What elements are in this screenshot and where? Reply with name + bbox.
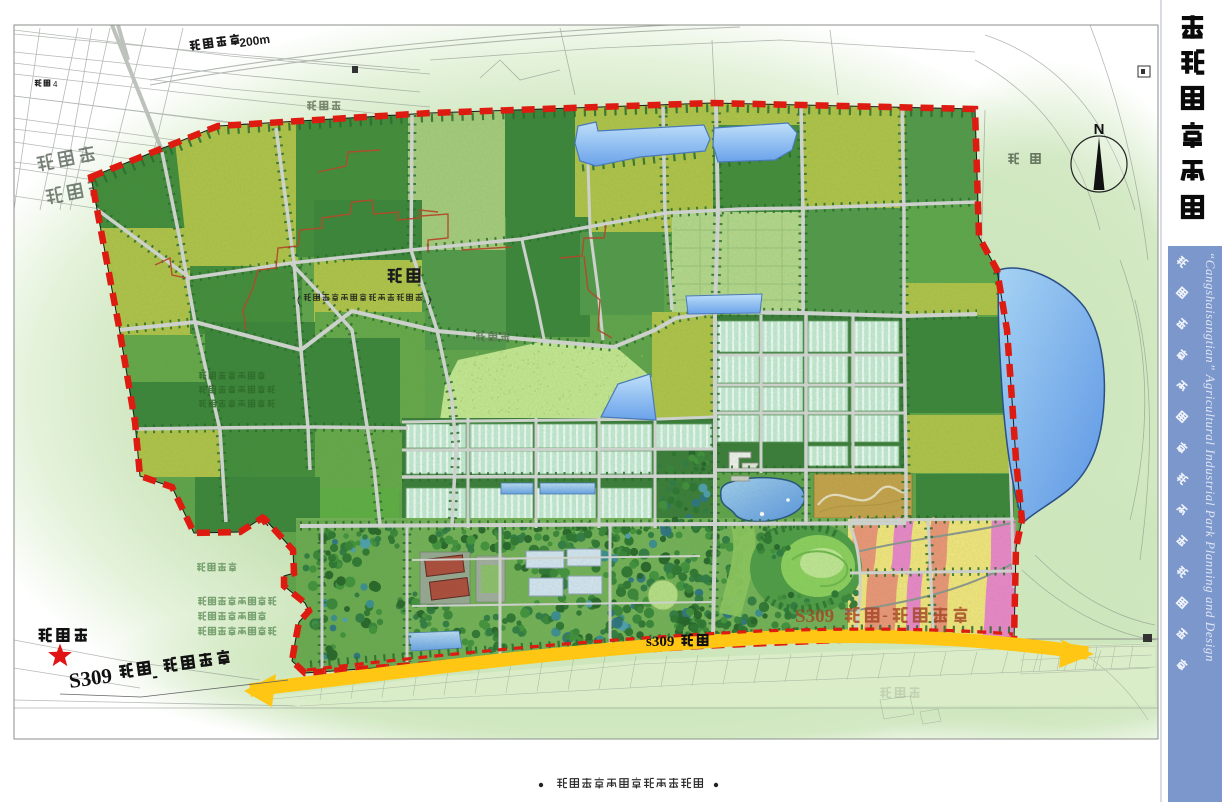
svg-text:): )	[428, 295, 431, 306]
svg-text:4: 4	[53, 80, 58, 89]
svg-text:“Cangshaisangtian” Agricultura: “Cangshaisangtian” Agricultural Industri…	[1203, 252, 1218, 662]
svg-text:N: N	[1094, 121, 1105, 138]
svg-text:s309: s309	[646, 634, 674, 650]
svg-text:-: -	[882, 605, 888, 625]
svg-text:S309: S309	[795, 606, 834, 627]
